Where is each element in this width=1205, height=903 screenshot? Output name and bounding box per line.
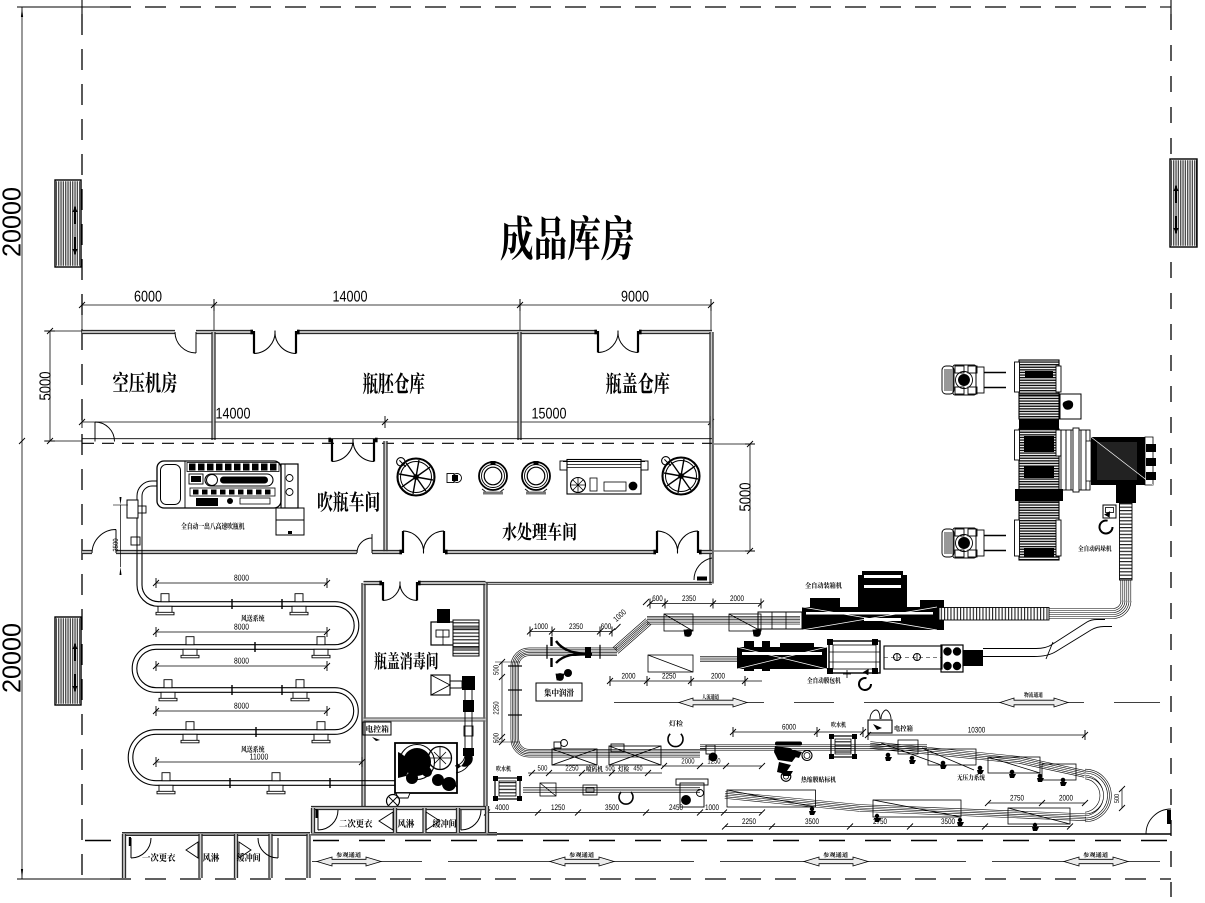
svg-text:8000: 8000 [234,573,249,583]
svg-text:2000: 2000 [1059,794,1074,803]
svg-text:2350: 2350 [569,622,584,631]
svg-text:2350: 2350 [682,594,697,603]
svg-text:14000: 14000 [333,289,368,306]
svg-text:15000: 15000 [532,406,567,423]
svg-text:2750: 2750 [1010,794,1025,803]
svg-text:9000: 9000 [621,289,649,306]
svg-text:2750: 2750 [873,817,888,826]
svg-text:4000: 4000 [495,803,510,812]
svg-text:2000: 2000 [621,672,636,681]
svg-text:500: 500 [605,766,614,773]
svg-text:450: 450 [633,766,642,773]
svg-text:2250: 2250 [742,817,757,826]
svg-text:8000: 8000 [234,701,249,711]
svg-text:2000: 2000 [681,757,694,766]
svg-text:3500: 3500 [605,803,620,812]
svg-text:11000: 11000 [250,752,269,762]
svg-text:2000: 2000 [730,594,745,603]
svg-text:2250: 2250 [492,701,501,714]
svg-text:1000: 1000 [705,803,720,812]
svg-text:3500: 3500 [941,817,956,826]
svg-text:3500: 3500 [111,538,120,551]
svg-text:2250: 2250 [565,764,578,773]
svg-text:1250: 1250 [551,803,566,812]
svg-text:500: 500 [538,764,548,773]
svg-text:6000: 6000 [134,289,162,306]
svg-text:1000: 1000 [534,622,549,631]
svg-text:2250: 2250 [662,672,677,681]
svg-text:2450: 2450 [669,803,684,812]
svg-text:500: 500 [492,733,501,743]
svg-text:5000: 5000 [38,371,55,400]
svg-text:500: 500 [1114,794,1121,803]
svg-text:2000: 2000 [711,672,726,681]
svg-text:500: 500 [492,665,501,675]
svg-text:6000: 6000 [782,723,797,732]
svg-text:8000: 8000 [234,622,249,632]
svg-text:3500: 3500 [805,817,820,826]
svg-text:600: 600 [601,622,612,631]
svg-text:20000: 20000 [0,623,27,693]
svg-text:8000: 8000 [234,656,249,666]
svg-text:600: 600 [652,594,663,603]
svg-text:20000: 20000 [0,187,27,257]
svg-text:10300: 10300 [968,726,986,735]
svg-text:5000: 5000 [738,482,755,511]
svg-text:1250: 1250 [707,757,720,766]
svg-text:14000: 14000 [216,406,251,423]
